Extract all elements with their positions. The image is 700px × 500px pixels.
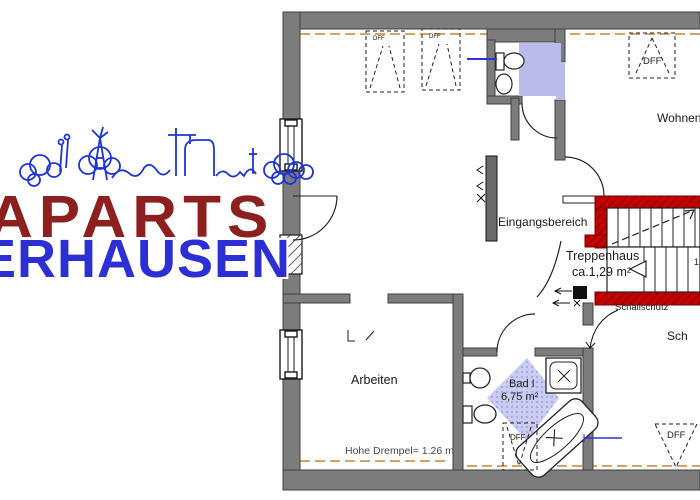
door-arc-wc (522, 103, 557, 138)
wc-shower-area (519, 43, 561, 96)
wall-wc-left (487, 40, 495, 104)
dff-label-top-right: DFF (643, 57, 661, 67)
wall-wohnen-divider-bottom (555, 100, 565, 160)
wall-arbeiten-top-left (283, 294, 350, 303)
wall-bottom (283, 470, 700, 490)
room-area-treppenhaus: ca.1,29 m² (572, 266, 631, 279)
door-arc-bad (497, 314, 535, 352)
dff-symbol-bed-left (366, 31, 404, 92)
bad-toilet-bowl (474, 405, 496, 423)
room-label-wohnen: Wohnen (657, 112, 700, 125)
wc-toilet-bowl (504, 53, 524, 69)
wall-arbeiten-bad-divider (453, 294, 463, 470)
wall-stub-below-stairs (583, 303, 593, 325)
wall-wc-front (487, 29, 565, 42)
window-left-upper (280, 119, 302, 171)
wall-top (283, 12, 700, 29)
dff-label-bottom-right: DFF (667, 431, 685, 441)
wall-bad-top-left (463, 348, 497, 356)
door-arc-wohnen (565, 157, 604, 196)
window-left-lower (280, 330, 302, 379)
entrance-door-sill (563, 196, 597, 203)
wall-arbeiten-top-right (388, 294, 455, 303)
door-marks-arbeiten (348, 330, 374, 341)
dff-label-bad: DFF (510, 434, 526, 442)
dff-symbol-bed-right (422, 29, 460, 90)
wall-hall-stub (511, 98, 519, 140)
annotation-schallschutz: Schallschutz (615, 303, 668, 313)
room-label-arbeiten: Arbeiten (351, 374, 398, 387)
schallschutz-block (573, 286, 587, 299)
room-label-bad: Bad I (509, 379, 535, 391)
room-label-treppenhaus: Treppenhaus (566, 250, 639, 263)
wc-toilet-tank (496, 53, 504, 70)
room-area-bad: 6,75 m² (501, 392, 538, 404)
chimney-block (280, 235, 302, 274)
room-label-eingangsbereich: Eingangsbereich (498, 216, 587, 229)
wall-panel-marking (556, 62, 565, 100)
bad-toilet-tank (463, 406, 472, 423)
stair-step-number: 1 (694, 258, 699, 267)
wc-sink (496, 74, 512, 94)
bad-shower (546, 358, 581, 393)
bad-sink (470, 368, 490, 388)
door-arc-treppenhaus (537, 241, 561, 297)
wall-entrance-pier (486, 156, 497, 241)
floor-plan-page: Wohnen Eingangsbereich Treppenhaus ca.1,… (0, 0, 700, 500)
annotation-drempel: Hohe Drempel= 1.26 m (345, 446, 454, 457)
wall-bad-top-right (535, 348, 585, 356)
room-label-schlafen-partial: Sch (667, 330, 688, 343)
dff-label-bed-left: DFF (373, 36, 385, 42)
dff-label-bed-right: DFF (429, 34, 441, 40)
